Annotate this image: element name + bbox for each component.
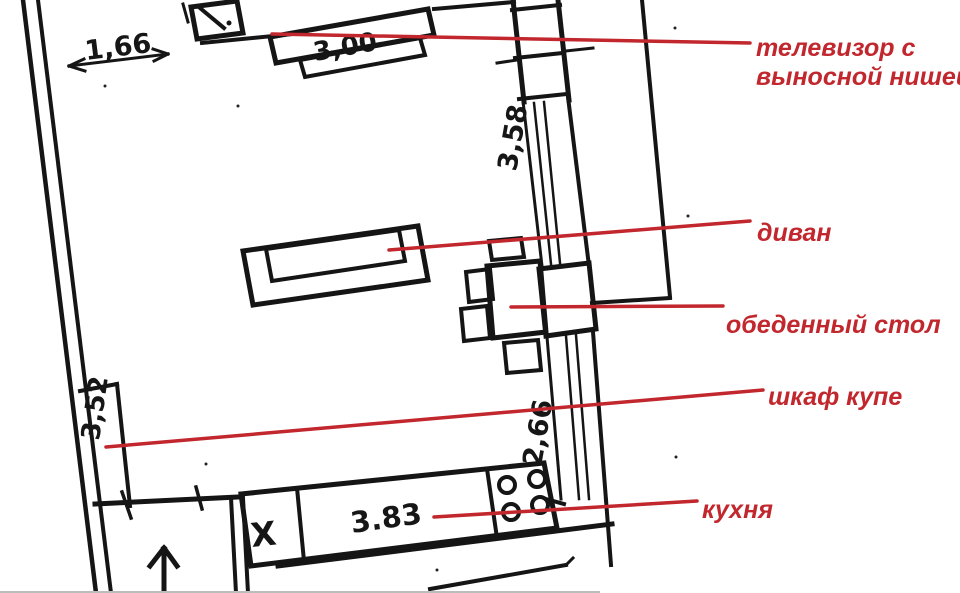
- left-wall-outer-line: [23, 0, 96, 593]
- label-kitchen: кухня: [702, 496, 773, 524]
- dim-kitchen-counter: 3.83: [348, 496, 424, 540]
- dim-window-upper: 3,58: [492, 102, 534, 173]
- leader-dining-table: [511, 306, 723, 307]
- wall-hatch-rung: [519, 94, 567, 99]
- door-tick: [183, 4, 188, 22]
- chair-left-lower: [461, 306, 490, 341]
- balcony-outer-wall: [642, 0, 670, 297]
- door-swing-line: [200, 8, 224, 28]
- label-wardrobe: шкаф купе: [768, 383, 902, 411]
- ink-speck: [687, 215, 690, 218]
- label-dining-table: обеденный стол: [726, 311, 941, 339]
- counter-divider: [487, 469, 497, 538]
- right-wall-left-line: [513, 0, 524, 102]
- arrowhead: [153, 49, 168, 54]
- leader-wardrobe: [106, 390, 763, 447]
- right-wall-lower: [606, 500, 611, 565]
- sofa-outline: [243, 226, 428, 305]
- window-outer-line: [593, 332, 606, 500]
- stove-burner: [499, 477, 515, 493]
- sofa-inner-rect: [266, 230, 405, 281]
- dim-entry-width: 1,66: [83, 28, 153, 67]
- floor-plan-sketch: X 1,66 3,00 3,58 3,52 2,66 3.83 телевизо…: [0, 0, 960, 593]
- top-wall-edge: [434, 2, 514, 9]
- label-tv-line1: телевизор с: [756, 34, 916, 62]
- annotation-labels: телевизор с выносной нишей диван обеденн…: [702, 34, 960, 524]
- ink-speck: [104, 85, 107, 88]
- bottom-wall-line: [278, 524, 612, 566]
- counter-divider: [297, 488, 304, 561]
- wall-stub-left: [497, 60, 517, 63]
- wall-hatch-rung: [515, 53, 563, 58]
- bottom-left-wall: [95, 497, 238, 504]
- direction-arrow: [150, 548, 177, 590]
- bottom-wall-line: [430, 565, 566, 589]
- balcony-bottom-edge: [592, 298, 670, 303]
- bottom-wall-hook: [566, 558, 573, 565]
- stove-burner: [529, 471, 545, 487]
- ink-speck: [436, 569, 439, 572]
- wall-hatch-rung: [512, 5, 560, 10]
- ink-speck: [674, 27, 677, 30]
- wall-stub-right: [566, 48, 593, 51]
- dim-left-wall: 3,52: [76, 374, 115, 442]
- label-sofa: диван: [757, 219, 832, 247]
- floor-plan-canvas: X 1,66 3,00 3,58 3,52 2,66 3.83 телевизо…: [0, 0, 960, 593]
- ink-speck: [205, 463, 208, 466]
- label-tv-line2: выносной нишей: [756, 63, 960, 91]
- walls: [23, 0, 670, 593]
- arrowhead: [69, 66, 85, 71]
- doorway-wall-line: [231, 498, 236, 593]
- ink-speck: [675, 456, 678, 459]
- annotation-leader-lines: [106, 34, 763, 517]
- leader-sofa: [389, 221, 750, 250]
- door-dot: [227, 21, 232, 26]
- ink-speck: [237, 105, 240, 108]
- sink-cross-mark: X: [249, 514, 278, 555]
- chair-bottom: [504, 340, 541, 373]
- window-outer-line: [568, 97, 589, 266]
